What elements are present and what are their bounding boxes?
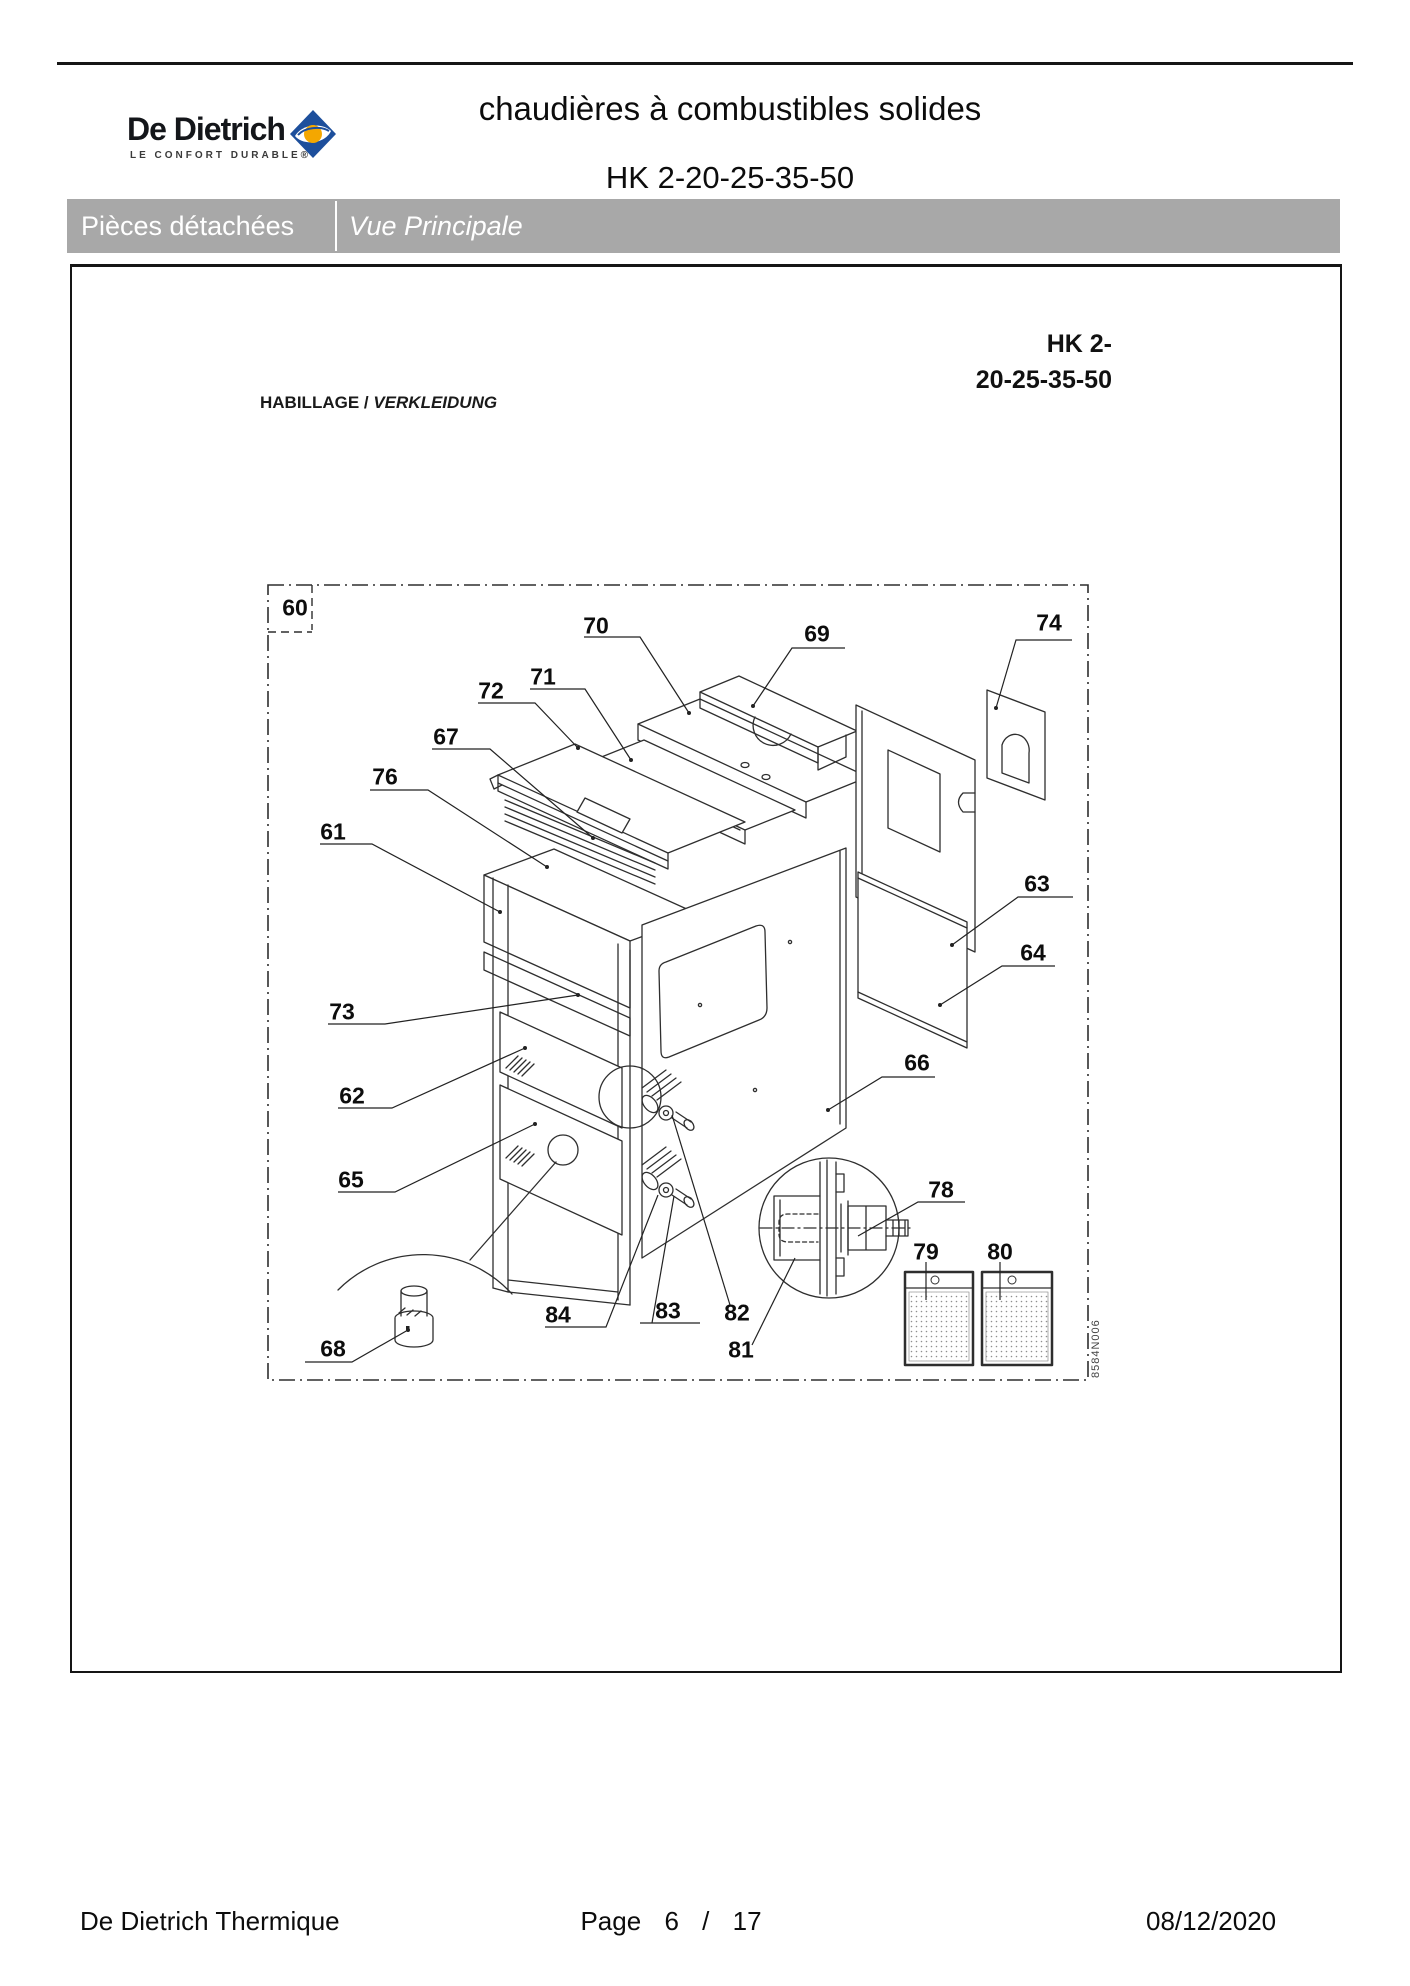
callout-64: 64 — [1020, 942, 1046, 965]
callout-69: 69 — [804, 623, 830, 646]
callout-80: 80 — [987, 1241, 1013, 1264]
callout-70: 70 — [583, 615, 609, 638]
callout-61: 61 — [320, 821, 346, 844]
callout-73: 73 — [329, 1001, 355, 1024]
footer-page-current: 6 — [664, 1906, 678, 1936]
callout-76: 76 — [372, 766, 398, 789]
drawing-code: 8584N006 — [1090, 1319, 1102, 1378]
callout-68: 68 — [320, 1338, 346, 1361]
callout-84: 84 — [545, 1304, 571, 1327]
footer-page-indicator: Page 6 / 17 — [0, 1906, 1342, 1937]
footer-page-word: Page — [580, 1906, 641, 1936]
callout-83: 83 — [655, 1300, 681, 1323]
document-page: De Dietrich LE CONFORT DURABLE® chaudièr… — [0, 0, 1410, 1986]
callout-65: 65 — [338, 1169, 364, 1192]
callout-layer: 6070697471726776616364736662657879808483… — [0, 0, 1410, 1986]
callout-60: 60 — [282, 597, 308, 620]
callout-67: 67 — [433, 726, 459, 749]
callout-74: 74 — [1036, 612, 1062, 635]
callout-81: 81 — [728, 1339, 754, 1362]
footer-date: 08/12/2020 — [1146, 1906, 1276, 1937]
callout-66: 66 — [904, 1052, 930, 1075]
callout-72: 72 — [478, 680, 504, 703]
callout-63: 63 — [1024, 873, 1050, 896]
callout-79: 79 — [913, 1241, 939, 1264]
callout-82: 82 — [724, 1302, 750, 1325]
callout-71: 71 — [530, 666, 556, 689]
footer-page-total: 17 — [733, 1906, 762, 1936]
callout-78: 78 — [928, 1179, 954, 1202]
callout-62: 62 — [339, 1085, 365, 1108]
footer-page-separator: / — [702, 1906, 709, 1936]
